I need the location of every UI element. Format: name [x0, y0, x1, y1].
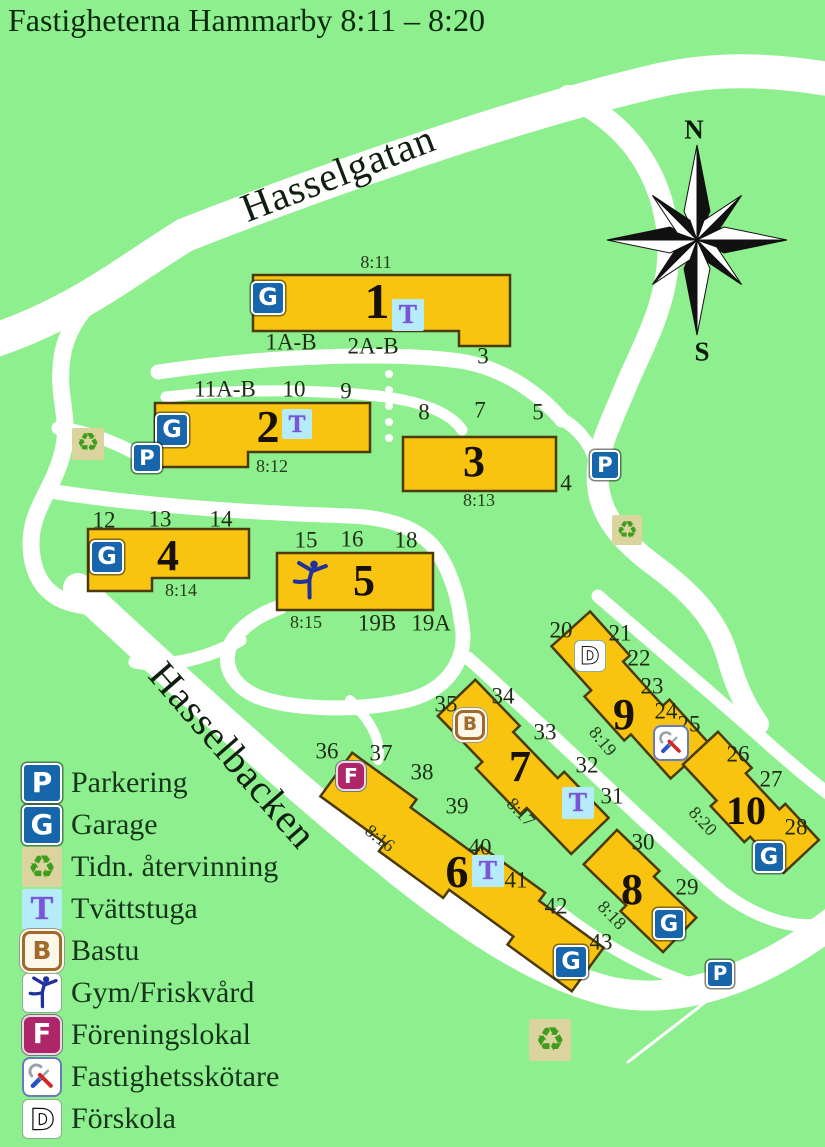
laundry-icon: T — [282, 409, 312, 439]
entrance-label: 13 — [149, 508, 172, 531]
entrance-label: 21 — [609, 622, 632, 645]
club-icon: F — [22, 1015, 62, 1055]
legend-item-sauna: BBastu — [22, 930, 279, 972]
legend-item-preschool: DFörskola — [22, 1098, 279, 1140]
entrance-label: 24 — [655, 700, 678, 723]
entrance-label: 2A-B — [347, 335, 398, 358]
legend-label: Gym/Friskvård — [71, 976, 254, 1010]
building-1-property-id: 8:11 — [360, 253, 391, 271]
parking-icon: P — [22, 763, 62, 803]
building-4-number: 4 — [157, 534, 179, 578]
entrance-label: 20 — [550, 619, 573, 642]
page-title: Fastigheterna Hammarby 8:11 – 8:20 — [8, 2, 485, 39]
preschool-icon: D — [22, 1099, 62, 1139]
property-map: Fastigheterna Hammarby 8:11 – 8:20 Hasse… — [0, 0, 825, 1147]
building-8-number: 8 — [621, 868, 643, 912]
recycling-icon: ♻ — [22, 847, 62, 887]
building-10-number: 10 — [726, 791, 766, 831]
recycling-icon: ♻ — [72, 428, 104, 460]
entrance-label: 23 — [641, 675, 664, 698]
legend-item-clubroom: FFöreningslokal — [22, 1014, 279, 1056]
map-labels-layer: Fastigheterna Hammarby 8:11 – 8:20 Hasse… — [0, 0, 825, 1147]
entrance-label: 7 — [474, 399, 486, 422]
parking-icon: P — [132, 443, 162, 473]
entrance-label: 30 — [632, 831, 655, 854]
legend-label: Tidn. återvinning — [71, 850, 278, 884]
entrance-label: 16 — [341, 528, 364, 551]
entrance-label: 22 — [628, 647, 651, 670]
building-3-number: 3 — [463, 440, 485, 484]
legend-label: Förskola — [71, 1102, 176, 1136]
legend-item-garage: GGarage — [22, 804, 279, 846]
legend-label: Garage — [71, 808, 158, 842]
entrance-label: 11A-B — [194, 378, 256, 401]
legend-label: Tvättstuga — [71, 892, 198, 926]
entrance-label: 37 — [370, 742, 393, 765]
caretaker-icon — [22, 1057, 62, 1097]
entrance-label: 41 — [505, 869, 528, 892]
garage-icon: G — [753, 841, 785, 873]
legend-label: Bastu — [71, 934, 139, 968]
entrance-label: 26 — [727, 743, 750, 766]
building-9-number: 9 — [613, 693, 635, 737]
sauna-icon: B — [455, 710, 485, 740]
legend-item-caretaker: Fastighetsskötare — [22, 1056, 279, 1098]
building-4-property-id: 8:14 — [165, 581, 197, 599]
gym-icon — [22, 973, 62, 1013]
garage-icon: G — [22, 805, 62, 845]
building-1-number: 1 — [365, 276, 390, 326]
entrance-label: 5 — [532, 401, 544, 424]
entrance-label: 9 — [340, 380, 352, 403]
building-10-property-id: 8:20 — [686, 803, 721, 839]
preschool-icon: D — [574, 640, 606, 672]
compass-north-label: N — [684, 115, 704, 146]
building-6-property-id: 8:16 — [362, 821, 398, 855]
street-label-hasselgatan: Hasselgatan — [234, 114, 442, 231]
garage-icon: G — [90, 540, 124, 574]
entrance-label: 4 — [560, 472, 572, 495]
entrance-label: 19A — [411, 612, 451, 635]
gym-icon — [286, 558, 332, 604]
building-5-number: 5 — [353, 559, 375, 603]
recycling-icon: ♻ — [529, 1019, 571, 1061]
entrance-label: 3 — [477, 345, 489, 368]
entrance-label: 10 — [283, 378, 306, 401]
legend-label: Fastighetsskötare — [71, 1060, 279, 1094]
legend-item-recycling: ♻Tidn. återvinning — [22, 846, 279, 888]
svg-text:D: D — [31, 1102, 54, 1135]
sauna-icon: B — [22, 931, 62, 971]
entrance-label: 8 — [418, 401, 430, 424]
entrance-label: 43 — [590, 931, 613, 954]
garage-icon: G — [251, 281, 285, 315]
entrance-label: 18 — [395, 529, 418, 552]
entrance-label: 35 — [435, 693, 458, 716]
laundry-icon: T — [472, 855, 504, 887]
caretaker-icon — [653, 725, 689, 761]
building-6-number: 6 — [446, 849, 469, 895]
legend-item-gym: Gym/Friskvård — [22, 972, 279, 1014]
club-icon: F — [336, 761, 366, 791]
entrance-label: 32 — [576, 754, 599, 777]
building-7-number: 7 — [509, 745, 531, 789]
legend-label: Parkering — [71, 766, 188, 800]
building-7-property-id: 8:17 — [503, 794, 538, 830]
legend: PParkeringGGarage♻Tidn. återvinningTTvät… — [22, 762, 279, 1140]
entrance-label: 38 — [411, 761, 434, 784]
entrance-label: 14 — [210, 508, 233, 531]
legend-item-parking: PParkering — [22, 762, 279, 804]
building-5-property-id: 8:15 — [290, 613, 322, 631]
garage-icon: G — [653, 908, 685, 940]
svg-text:D: D — [581, 644, 599, 669]
legend-label: Föreningslokal — [71, 1018, 251, 1052]
garage-icon: G — [554, 945, 588, 979]
building-3-property-id: 8:13 — [463, 491, 495, 509]
entrance-label: 42 — [545, 895, 568, 918]
entrance-label: 15 — [295, 529, 318, 552]
entrance-label: 27 — [760, 768, 783, 791]
parking-icon: P — [590, 450, 620, 480]
entrance-label: 19B — [358, 612, 396, 635]
entrance-label: 31 — [601, 785, 624, 808]
entrance-label: 29 — [676, 876, 699, 899]
entrance-label: 34 — [492, 685, 515, 708]
laundry-icon: T — [562, 787, 594, 819]
entrance-label: 33 — [534, 721, 557, 744]
laundry-icon: T — [22, 889, 62, 929]
entrance-label: 1A-B — [265, 331, 316, 354]
laundry-icon: T — [392, 299, 424, 331]
building-2-number: 2 — [257, 404, 280, 450]
compass-south-label: S — [694, 337, 709, 368]
entrance-label: 36 — [316, 740, 339, 763]
entrance-label: 39 — [446, 795, 469, 818]
recycling-icon: ♻ — [612, 515, 642, 545]
entrance-label: 28 — [785, 816, 808, 839]
entrance-label: 12 — [93, 509, 116, 532]
parking-icon: P — [706, 960, 734, 988]
garage-icon: G — [155, 413, 189, 447]
building-2-property-id: 8:12 — [256, 457, 288, 475]
legend-item-laundry: TTvättstuga — [22, 888, 279, 930]
